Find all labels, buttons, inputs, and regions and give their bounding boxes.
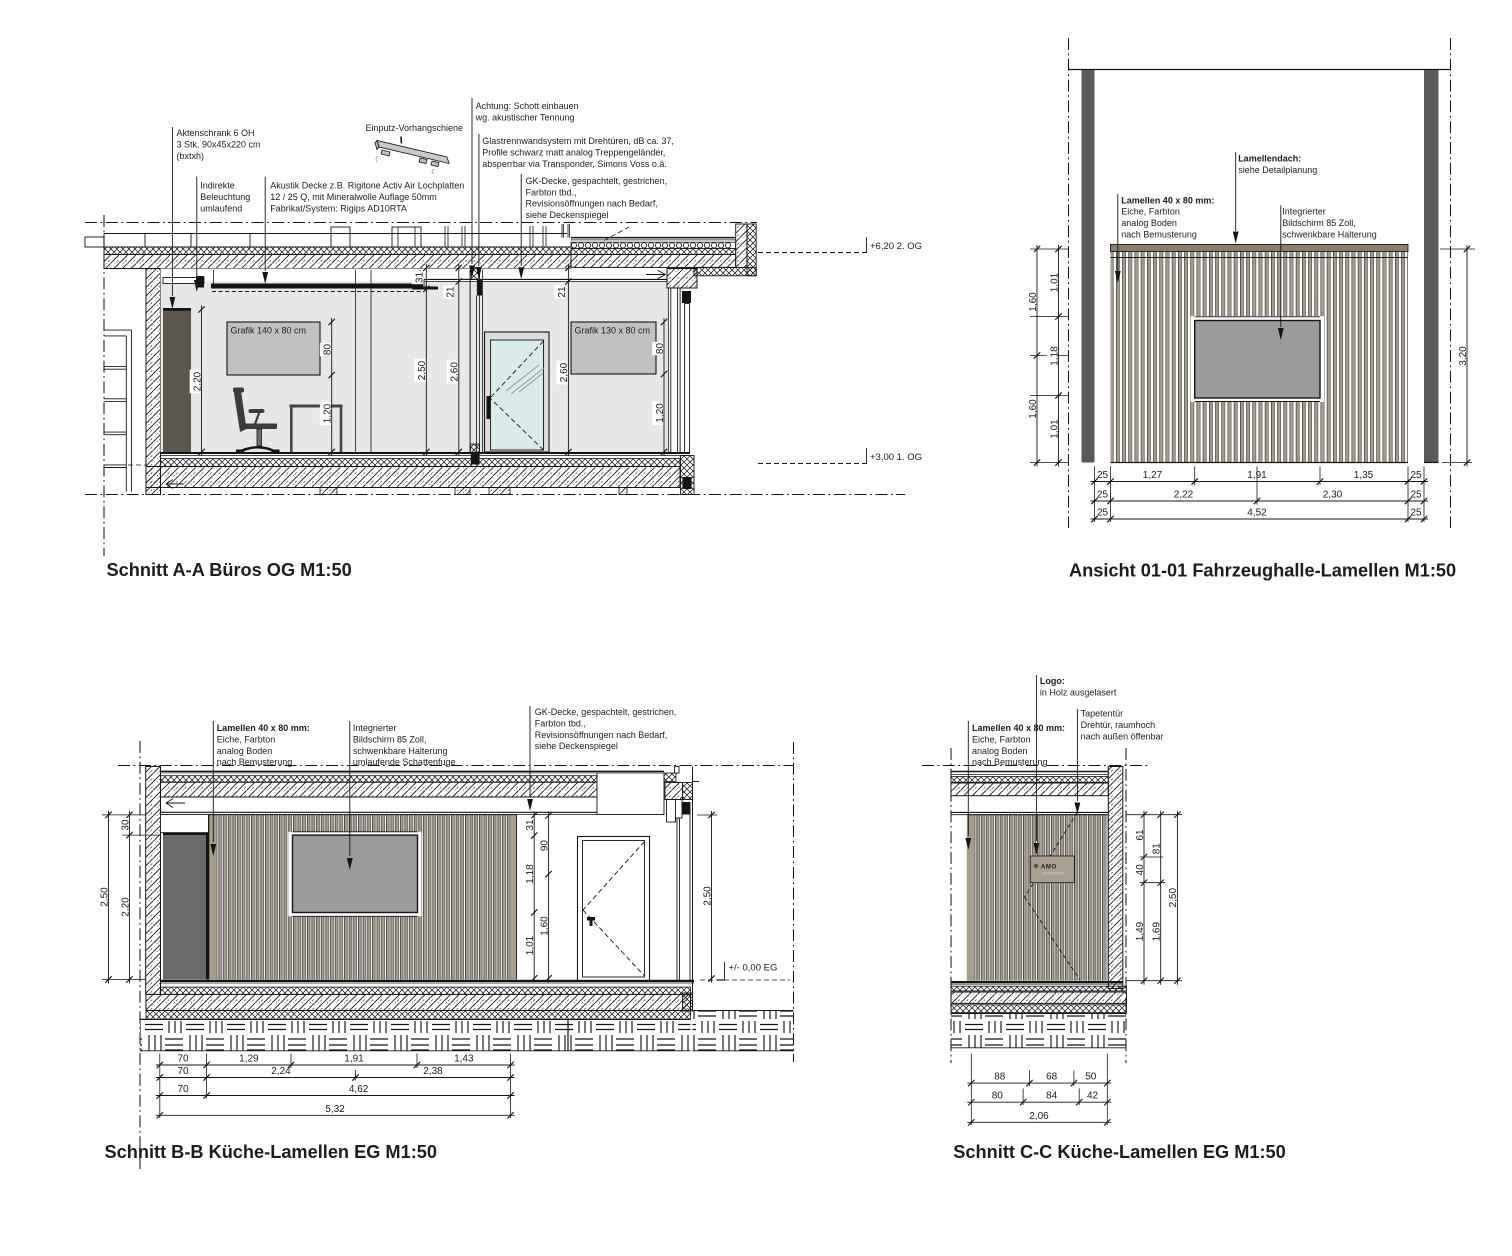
svg-text:30: 30 bbox=[120, 819, 131, 831]
svg-text:Eiche, Farbton: Eiche, Farbton bbox=[1121, 207, 1180, 217]
svg-text:schwenkbare Halterung: schwenkbare Halterung bbox=[353, 746, 448, 756]
svg-text:Ansicht 01-01 Fahrzeughalle-La: Ansicht 01-01 Fahrzeughalle-Lamellen M1:… bbox=[1069, 561, 1456, 581]
svg-text:2,06: 2,06 bbox=[1029, 1111, 1049, 1122]
svg-text:1,91: 1,91 bbox=[1247, 470, 1267, 481]
svg-text:80: 80 bbox=[992, 1091, 1004, 1102]
svg-text:1,35: 1,35 bbox=[1354, 470, 1374, 481]
svg-text:3,20: 3,20 bbox=[1458, 346, 1469, 366]
svg-text:1,60: 1,60 bbox=[539, 916, 550, 936]
svg-text:1,20: 1,20 bbox=[323, 403, 334, 423]
svg-text:Revisionsöffnungen nach Bedarf: Revisionsöffnungen nach Bedarf, bbox=[526, 199, 658, 209]
svg-text:Eiche, Farbton: Eiche, Farbton bbox=[217, 734, 276, 744]
svg-text:25: 25 bbox=[1097, 470, 1109, 481]
svg-text:25: 25 bbox=[1097, 490, 1109, 501]
svg-text:1,69: 1,69 bbox=[1152, 922, 1163, 942]
svg-text:31: 31 bbox=[414, 272, 425, 284]
svg-text:analog Boden: analog Boden bbox=[217, 746, 273, 756]
svg-text:40: 40 bbox=[1135, 864, 1146, 876]
svg-text:GK-Decke, gespachtelt, gestric: GK-Decke, gespachtelt, gestrichen, bbox=[526, 176, 668, 186]
svg-text:1,01: 1,01 bbox=[525, 935, 536, 955]
svg-text:umlaufende Schattenfuge: umlaufende Schattenfuge bbox=[353, 757, 456, 767]
svg-text:25: 25 bbox=[1410, 490, 1422, 501]
svg-text:AMO: AMO bbox=[1041, 865, 1057, 871]
svg-text:90: 90 bbox=[539, 840, 550, 852]
svg-text:25: 25 bbox=[1410, 508, 1422, 519]
svg-text:68: 68 bbox=[1046, 1072, 1058, 1083]
svg-text:+6,20 2. OG: +6,20 2. OG bbox=[870, 241, 922, 252]
svg-text:Bildschirm 85 Zoll,: Bildschirm 85 Zoll, bbox=[353, 734, 427, 744]
svg-text:nach Bemusterung: nach Bemusterung bbox=[1121, 229, 1197, 239]
svg-text:2,50: 2,50 bbox=[702, 886, 713, 906]
svg-text:GK-Decke, gespachtelt, gestric: GK-Decke, gespachtelt, gestrichen, bbox=[535, 707, 677, 717]
svg-text:Bildschirm 85 Zoll,: Bildschirm 85 Zoll, bbox=[1282, 218, 1356, 228]
svg-text:1,01: 1,01 bbox=[1049, 272, 1060, 292]
svg-text:Integrierter: Integrierter bbox=[1282, 207, 1326, 217]
svg-text:2,20: 2,20 bbox=[120, 897, 131, 917]
svg-text:1,18: 1,18 bbox=[1049, 346, 1060, 366]
svg-text:Revisionsöffnungen nach Bedarf: Revisionsöffnungen nach Bedarf, bbox=[535, 730, 667, 740]
svg-text:(bxtxh): (bxtxh) bbox=[177, 151, 205, 161]
svg-text:84: 84 bbox=[1046, 1091, 1058, 1102]
svg-text:siehe Detailplanung: siehe Detailplanung bbox=[1238, 165, 1317, 175]
svg-text:Integrierter: Integrierter bbox=[353, 723, 397, 733]
svg-text:31: 31 bbox=[525, 819, 536, 831]
svg-text:Aktenschrank 6 OH: Aktenschrank 6 OH bbox=[177, 128, 255, 138]
svg-text:70: 70 bbox=[177, 1084, 189, 1095]
svg-text:2,60: 2,60 bbox=[559, 362, 570, 382]
svg-text:21: 21 bbox=[446, 286, 457, 298]
svg-text:Indirekte: Indirekte bbox=[200, 181, 235, 191]
svg-text:2,22: 2,22 bbox=[1174, 490, 1194, 501]
svg-text:2,24: 2,24 bbox=[271, 1066, 291, 1077]
svg-text:Achtung: Schott einbauen: Achtung: Schott einbauen bbox=[476, 101, 579, 111]
svg-text:analog Boden: analog Boden bbox=[1121, 218, 1177, 228]
svg-text:21: 21 bbox=[557, 286, 568, 298]
svg-text:1,91: 1,91 bbox=[344, 1054, 364, 1065]
svg-text:25: 25 bbox=[1410, 470, 1422, 481]
svg-text:in Holz ausgelasert: in Holz ausgelasert bbox=[1040, 687, 1117, 697]
svg-text:Tapetentür: Tapetentür bbox=[1081, 709, 1124, 719]
svg-text:Lamellen 40 x 80 mm:: Lamellen 40 x 80 mm: bbox=[1121, 195, 1214, 205]
svg-text:Glastrennwandsystem mit Drehtü: Glastrennwandsystem mit Drehtüren, dB ca… bbox=[482, 136, 674, 146]
svg-text:50: 50 bbox=[1085, 1072, 1097, 1083]
svg-text:1,49: 1,49 bbox=[1135, 921, 1146, 941]
svg-text:1,60: 1,60 bbox=[1028, 292, 1039, 312]
svg-text:2,60: 2,60 bbox=[449, 362, 460, 382]
svg-text:umlaufend: umlaufend bbox=[200, 203, 242, 213]
svg-text:schwenkbare Halterung: schwenkbare Halterung bbox=[1282, 229, 1377, 239]
svg-text:1,43: 1,43 bbox=[454, 1054, 474, 1065]
svg-text:analog Boden: analog Boden bbox=[972, 746, 1028, 756]
svg-text:61: 61 bbox=[1135, 829, 1146, 841]
svg-text:1,27: 1,27 bbox=[1143, 470, 1163, 481]
svg-text:Lamellen 40 x 80 mm:: Lamellen 40 x 80 mm: bbox=[217, 723, 310, 733]
svg-text:3 Stk. 90x45x220 cm: 3 Stk. 90x45x220 cm bbox=[177, 139, 261, 149]
svg-text:4,62: 4,62 bbox=[349, 1084, 369, 1095]
svg-text:2,50: 2,50 bbox=[99, 887, 110, 907]
svg-text:80: 80 bbox=[323, 344, 334, 356]
svg-text:1,01: 1,01 bbox=[1049, 419, 1060, 439]
svg-text:25: 25 bbox=[1097, 508, 1109, 519]
svg-text:Drehtür, raumhoch: Drehtür, raumhoch bbox=[1081, 720, 1156, 730]
svg-text:2,30: 2,30 bbox=[1323, 490, 1343, 501]
svg-text:4,52: 4,52 bbox=[1247, 508, 1267, 519]
svg-text:70: 70 bbox=[177, 1054, 189, 1065]
svg-text:+/- 0,00 EG: +/- 0,00 EG bbox=[729, 963, 778, 974]
svg-text:12 / 25 Q, mit Mineralwolle Au: 12 / 25 Q, mit Mineralwolle Auflage 50mm bbox=[270, 192, 437, 202]
svg-text:2,50: 2,50 bbox=[417, 360, 428, 380]
svg-text:1,60: 1,60 bbox=[1028, 399, 1039, 419]
svg-text:Logo:: Logo: bbox=[1040, 676, 1065, 686]
svg-text:Farbton tbd.,: Farbton tbd., bbox=[526, 187, 577, 197]
svg-text:Profile schwarz matt analog Tr: Profile schwarz matt analog Treppengelän… bbox=[482, 147, 665, 157]
svg-text:88: 88 bbox=[994, 1072, 1006, 1083]
svg-text:42: 42 bbox=[1087, 1091, 1099, 1102]
svg-text:Schnitt C-C Küche-Lamellen EG: Schnitt C-C Küche-Lamellen EG M1:50 bbox=[953, 1142, 1285, 1162]
svg-text:Beleuchtung: Beleuchtung bbox=[200, 192, 250, 202]
svg-text:80: 80 bbox=[655, 343, 666, 355]
svg-text:Grafik 140 x 80 cm: Grafik 140 x 80 cm bbox=[231, 326, 307, 336]
svg-text:siehe Deckenspiegel: siehe Deckenspiegel bbox=[535, 741, 618, 751]
svg-text:nach Bemusterung: nach Bemusterung bbox=[217, 757, 293, 767]
svg-text:1,29: 1,29 bbox=[239, 1054, 259, 1065]
svg-text:Lamellendach:: Lamellendach: bbox=[1238, 153, 1301, 163]
svg-text:Grafik 130 x 80 cm: Grafik 130 x 80 cm bbox=[575, 326, 651, 336]
svg-text:1,18: 1,18 bbox=[525, 864, 536, 884]
svg-text:Einputz-Vorhangschiene: Einputz-Vorhangschiene bbox=[366, 123, 464, 133]
svg-text:nach außen öffenbar: nach außen öffenbar bbox=[1081, 732, 1164, 742]
svg-text:Lamellen 40 x 80 mm:: Lamellen 40 x 80 mm: bbox=[972, 723, 1065, 733]
svg-text:Farbton tbd.,: Farbton tbd., bbox=[535, 718, 586, 728]
svg-text:+3,00 1. OG: +3,00 1. OG bbox=[870, 452, 922, 463]
svg-text:1,20: 1,20 bbox=[655, 403, 666, 423]
svg-text:nach Bemusterung: nach Bemusterung bbox=[972, 757, 1048, 767]
svg-text:siehe Deckenspiegel: siehe Deckenspiegel bbox=[526, 210, 609, 220]
svg-text:Fabrikat/System: Rigips AD10RT: Fabrikat/System: Rigips AD10RTA bbox=[270, 203, 407, 213]
svg-text:70: 70 bbox=[177, 1066, 189, 1077]
svg-text:Schnitt B-B Küche-Lamellen EG: Schnitt B-B Küche-Lamellen EG M1:50 bbox=[105, 1142, 437, 1162]
svg-text:81: 81 bbox=[1152, 843, 1163, 855]
svg-text:5,32: 5,32 bbox=[325, 1104, 345, 1115]
svg-text:wg. akustischer Tennung: wg. akustischer Tennung bbox=[475, 112, 575, 122]
svg-text:2,50: 2,50 bbox=[1168, 888, 1179, 908]
svg-text:Schnitt A-A Büros OG M1:50: Schnitt A-A Büros OG M1:50 bbox=[107, 560, 352, 580]
svg-text:2,20: 2,20 bbox=[192, 371, 203, 391]
svg-text:absperrbar via Transponder, Si: absperrbar via Transponder, Simons Voss … bbox=[482, 159, 667, 169]
svg-text:Akustik Decke z.B. Rigitone A: Akustik Decke z.B. Rigitone Activ Air Lo… bbox=[270, 181, 464, 191]
svg-text:2,38: 2,38 bbox=[423, 1066, 443, 1077]
svg-text:Eiche, Farbton: Eiche, Farbton bbox=[972, 734, 1031, 744]
